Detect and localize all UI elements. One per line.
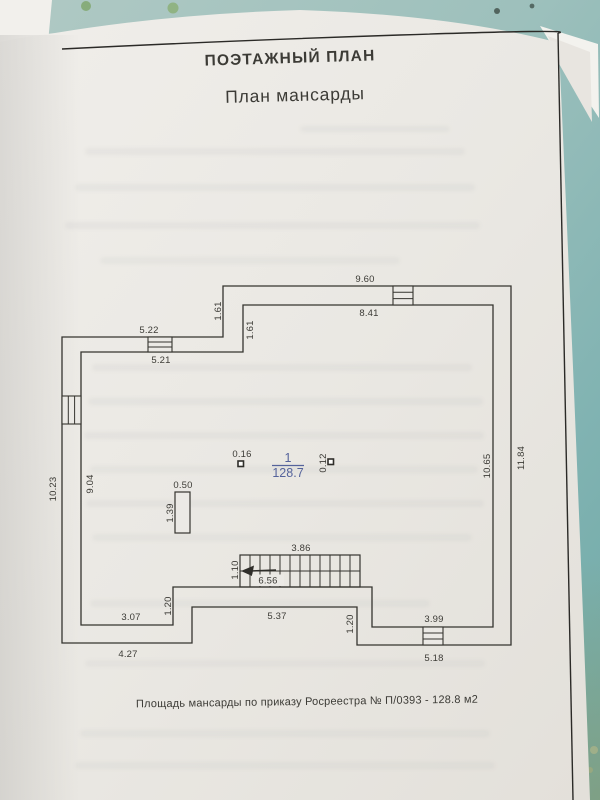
dim-top-outer-label: 9.60: [355, 274, 374, 285]
water-droplet: [168, 3, 179, 14]
dim-flue-height-label: 1.39: [165, 503, 176, 522]
dim-left-top-outer-label: 5.22: [139, 325, 158, 336]
dim-bottom-left-inner-label: 3.07: [121, 612, 140, 623]
column-square-left: [238, 461, 244, 467]
dim-bottom-right-inner-label: 3.99: [424, 614, 443, 625]
dim-stairs-depth-label: 1.10: [230, 560, 241, 579]
dim-left-outer-label: 10.23: [48, 477, 59, 502]
window-left-wall: [62, 396, 81, 424]
dim-column-right-label: 0.12: [318, 453, 329, 472]
water-droplet: [590, 746, 598, 754]
speck: [530, 4, 535, 9]
dim-step-top-outer-label: 1.61: [213, 301, 224, 320]
room-number-label: 1: [285, 451, 292, 465]
window-bottom-right-wall: [423, 627, 443, 645]
dim-stairs-width-label: 3.86: [291, 543, 310, 554]
window-top-wall: [393, 286, 413, 305]
window-upper-left-wall: [148, 337, 172, 352]
dim-right-outer-label: 11.84: [516, 446, 527, 470]
dim-top-inner-label: 8.41: [359, 308, 378, 319]
photographed-floorplan-scene: ПОЭТАЖНЫЙ ПЛАН План мансарды: [0, 0, 600, 800]
dim-stairs-run-label: 6.56: [258, 576, 277, 587]
dim-step-bottom-right-label: 1.20: [345, 614, 356, 633]
dim-step-top-inner-label: 1.61: [245, 320, 256, 339]
dim-step-bottom-left-label: 1.20: [163, 596, 174, 615]
dim-bottom-left-outer-label: 4.27: [118, 649, 137, 660]
dim-column-left-label: 0.16: [232, 449, 251, 460]
speck: [494, 8, 500, 14]
page-subtitle: План мансарды: [225, 83, 365, 107]
dim-bottom-right-outer-label: 5.18: [424, 653, 443, 664]
water-droplet: [81, 1, 91, 11]
flue-shaft-rect: [175, 492, 190, 533]
dim-right-inner-label: 10.65: [482, 454, 493, 479]
dim-flue-width-label: 0.50: [173, 480, 192, 491]
dim-left-top-inner-label: 5.21: [151, 355, 170, 366]
dim-left-inner-label: 9.04: [85, 474, 96, 493]
room-area-label: 128.7: [272, 466, 303, 480]
dim-bottom-center-label: 5.37: [267, 611, 286, 622]
